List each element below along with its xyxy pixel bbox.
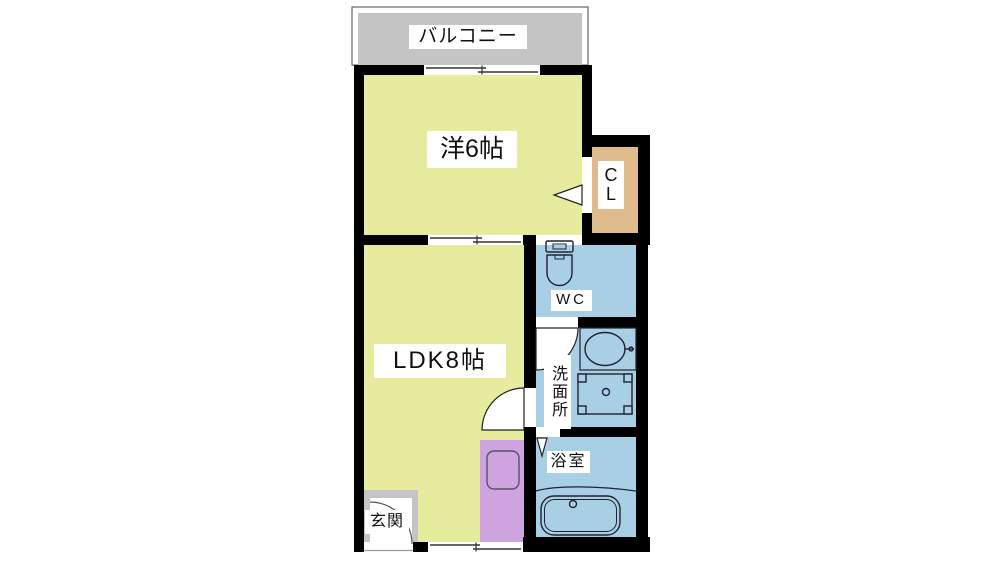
wall-ldk-wet-upper <box>524 235 536 388</box>
wc-label: WC <box>551 290 592 311</box>
closet-label-line2: L <box>606 185 616 204</box>
wall-ldk-wet-lower <box>524 430 536 551</box>
closet-opening <box>582 157 592 213</box>
wall-wc-washroom-left <box>524 317 536 328</box>
western-room-label: 洋6帖 <box>427 131 517 168</box>
wall-closet-bottom <box>582 233 650 245</box>
wall-washroom-bath-left <box>524 427 536 437</box>
closet-label: C L <box>598 161 624 209</box>
wall-bottom-bath <box>523 537 650 552</box>
window-symbol-room-divider <box>428 235 523 245</box>
balcony-label: バルコニー <box>409 25 527 49</box>
window-symbol-balcony <box>424 65 540 75</box>
wall-top-left <box>354 65 424 75</box>
kitchen-sink-icon <box>487 451 519 489</box>
entrance-label: 玄関 <box>365 510 409 534</box>
ldk-label: LDK8帖 <box>374 344 506 378</box>
wall-washroom-bath-right <box>560 427 648 437</box>
wall-bottom-left <box>413 542 428 552</box>
floor-plan-drawing <box>0 0 1000 562</box>
floor-plan-canvas: バルコニー 洋6帖 C L LDK8帖 WC 洗面所 浴室 玄関 <box>0 0 1000 562</box>
wall-left <box>354 65 364 552</box>
bathroom-label: 浴室 <box>547 451 590 473</box>
wall-top-right <box>540 65 592 75</box>
wall-middle-left <box>354 235 428 245</box>
washroom-label: 洗面所 <box>544 355 571 429</box>
wall-closet-right <box>638 135 650 245</box>
entrance-door-gap <box>364 542 413 552</box>
window-symbol-bottom <box>428 542 523 552</box>
wall-right-column <box>636 245 648 552</box>
closet-label-line1: C <box>605 166 618 185</box>
